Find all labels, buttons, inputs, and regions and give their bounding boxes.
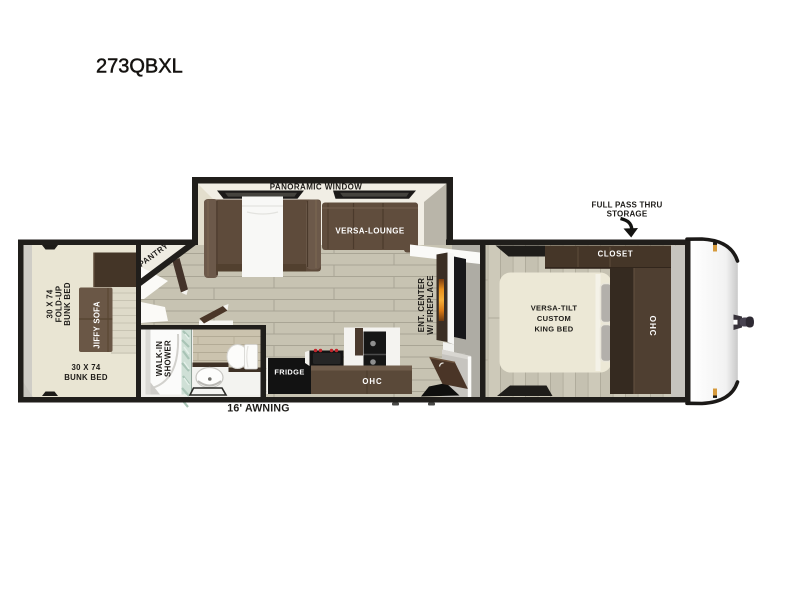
- svg-text:CUSTOM: CUSTOM: [537, 314, 571, 323]
- svg-text:FRIDGE: FRIDGE: [274, 368, 304, 377]
- svg-text:VERSA-LOUNGE: VERSA-LOUNGE: [335, 227, 405, 236]
- svg-text:OHC: OHC: [362, 377, 382, 386]
- svg-text:ENT. CENTER: ENT. CENTER: [417, 278, 426, 332]
- svg-text:STORAGE: STORAGE: [607, 210, 648, 219]
- svg-text:273QBXL: 273QBXL: [96, 56, 183, 78]
- svg-text:JIFFY SOFA: JIFFY SOFA: [93, 301, 102, 349]
- svg-text:16' AWNING: 16' AWNING: [227, 403, 289, 415]
- svg-text:BUNK BED: BUNK BED: [63, 282, 72, 326]
- svg-text:OHC: OHC: [648, 315, 658, 336]
- svg-text:CLOSET: CLOSET: [598, 250, 634, 259]
- svg-text:FOLD-UP: FOLD-UP: [54, 286, 63, 323]
- svg-text:30 X 74: 30 X 74: [46, 289, 55, 318]
- svg-text:PANORAMIC WINDOW: PANORAMIC WINDOW: [270, 183, 363, 192]
- svg-text:VERSA-TILT: VERSA-TILT: [531, 304, 578, 313]
- svg-text:KING BED: KING BED: [534, 325, 573, 334]
- svg-text:W/ FIREPLACE: W/ FIREPLACE: [426, 275, 435, 334]
- svg-text:SHOWER: SHOWER: [164, 340, 173, 377]
- svg-text:BUNK BED: BUNK BED: [64, 373, 108, 382]
- svg-text:FULL PASS THRU: FULL PASS THRU: [592, 201, 663, 210]
- svg-text:30 X 74: 30 X 74: [72, 363, 101, 372]
